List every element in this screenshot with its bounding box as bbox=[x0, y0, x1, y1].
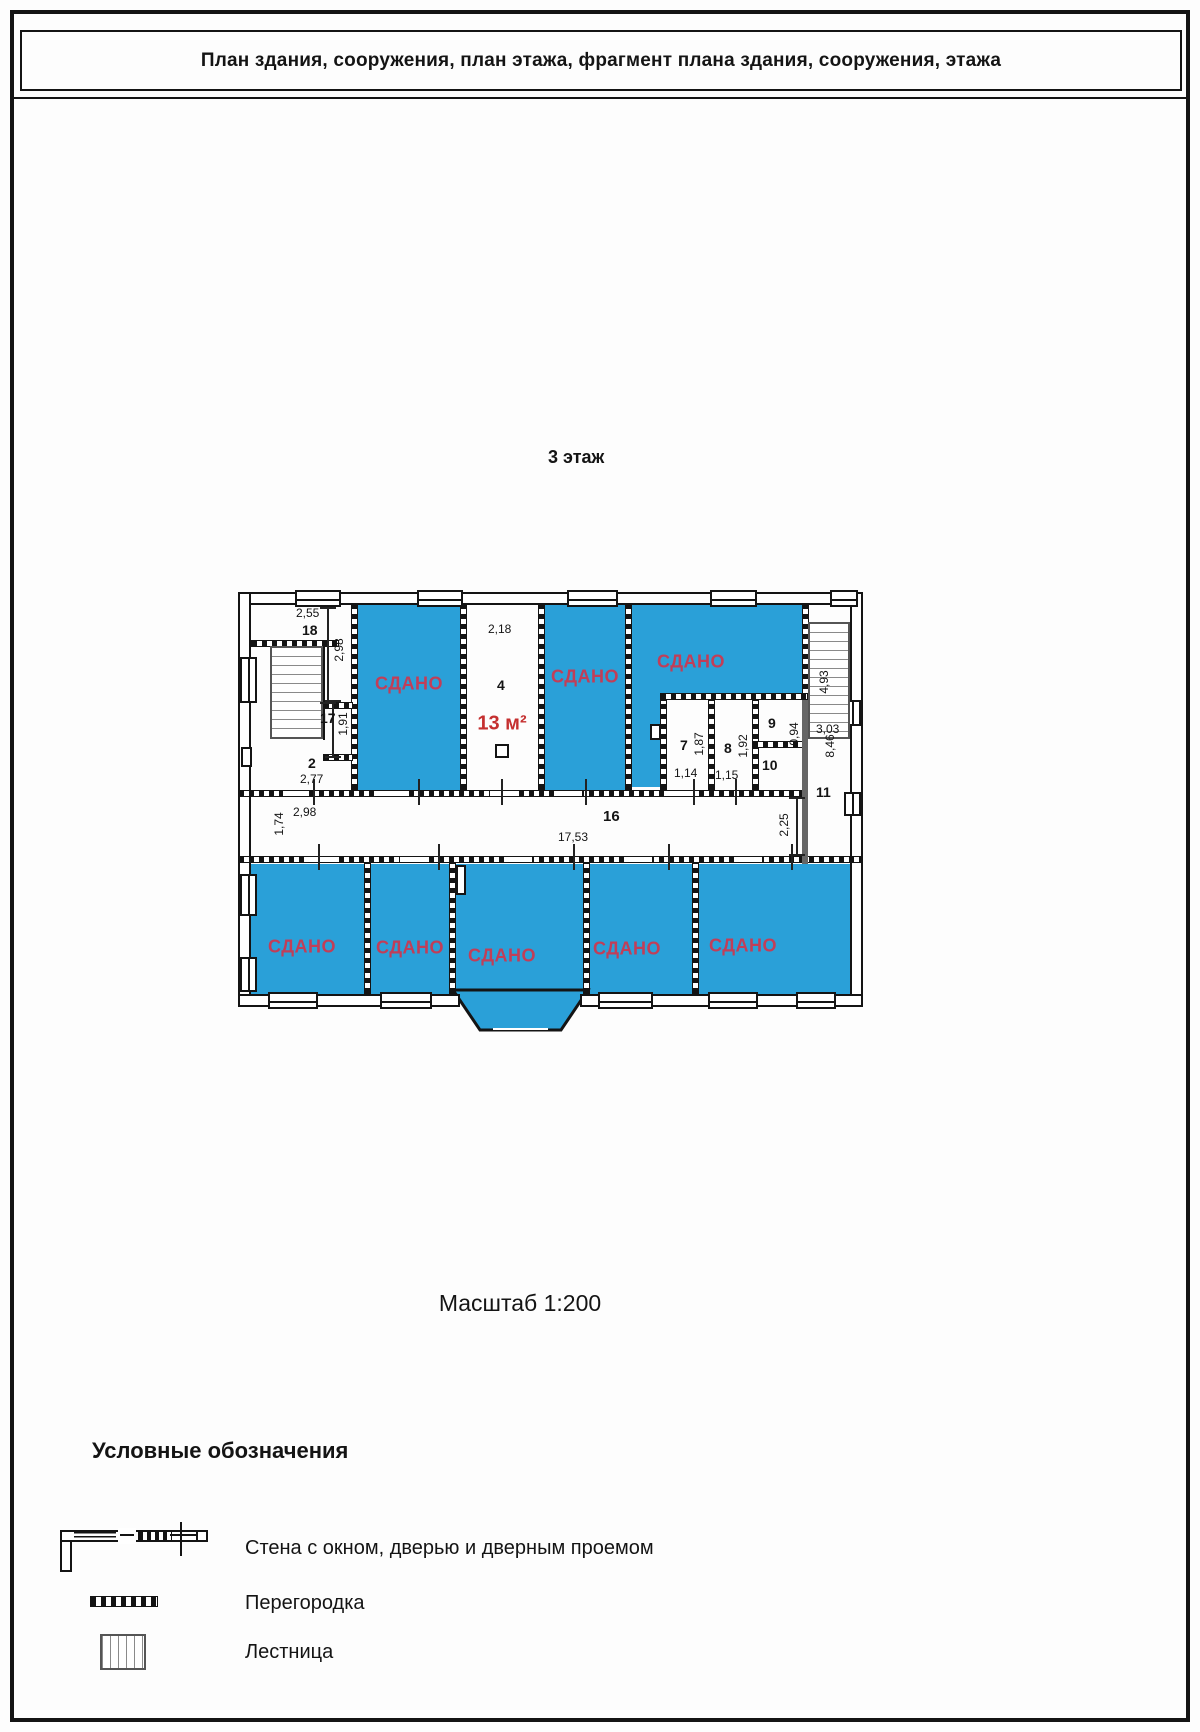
dimension-tick bbox=[318, 844, 320, 870]
bay-window bbox=[443, 988, 598, 1036]
rented-room-top-c-wing bbox=[632, 605, 660, 787]
legend-wall-label: Стена с окном, дверью и дверным проемом bbox=[245, 1537, 654, 1560]
dimension-tick bbox=[573, 844, 575, 870]
room-number-17: 17 bbox=[320, 710, 336, 726]
room-number-9: 9 bbox=[768, 715, 776, 731]
partition-wall bbox=[692, 863, 699, 994]
window-icon bbox=[240, 874, 257, 916]
door-icon bbox=[456, 865, 466, 895]
rented-label: СДАНО bbox=[593, 939, 661, 960]
dimension-tick bbox=[791, 844, 793, 870]
staircase-left bbox=[270, 646, 323, 739]
partition-wall bbox=[449, 863, 456, 994]
dim-2-98-vert: 2,98 bbox=[332, 638, 346, 661]
legend-partition-label: Перегородка bbox=[245, 1592, 365, 1615]
window-icon bbox=[417, 590, 463, 607]
rented-label: СДАНО bbox=[709, 936, 777, 957]
window-icon bbox=[268, 992, 318, 1009]
rented-room-top-a bbox=[358, 605, 460, 790]
dim-1-87: 1,87 bbox=[692, 732, 706, 755]
dim-1-14: 1,14 bbox=[674, 766, 697, 780]
door-icon bbox=[241, 747, 252, 767]
dim-2-18: 2,18 bbox=[488, 622, 511, 636]
partition-wall bbox=[660, 700, 667, 790]
rented-label: СДАНО bbox=[551, 667, 619, 688]
partition-wall bbox=[351, 605, 358, 790]
window-icon bbox=[295, 590, 341, 607]
door-opening bbox=[283, 790, 309, 797]
rented-room-bottom-1 bbox=[251, 864, 364, 994]
dim-3-03: 3,03 bbox=[816, 722, 839, 736]
dim-17-53: 17,53 bbox=[558, 830, 588, 844]
partition-wall bbox=[538, 605, 545, 790]
dimension-tick bbox=[693, 779, 695, 805]
dimension-line bbox=[327, 607, 329, 704]
legend-title: Условные обозначения bbox=[92, 1438, 348, 1464]
legend-partition-symbol bbox=[90, 1596, 158, 1607]
door-icon bbox=[650, 724, 661, 740]
floor-number-label: 3 этаж bbox=[548, 447, 604, 468]
window-icon bbox=[710, 590, 757, 607]
door-opening bbox=[378, 790, 406, 797]
partition-wall bbox=[708, 700, 715, 790]
window-icon bbox=[830, 590, 858, 607]
dimension-tick bbox=[585, 779, 587, 805]
dimension-line bbox=[332, 700, 334, 758]
legend-stairs-label: Лестница bbox=[245, 1641, 333, 1664]
rented-label: СДАНО bbox=[657, 652, 725, 673]
room-number-18: 18 bbox=[302, 622, 318, 638]
floor-plan: СДАНО СДАНО СДАНО СДАНО СДАНО СДАНО СДАН… bbox=[238, 574, 863, 1039]
door-opening bbox=[490, 790, 516, 797]
legend-stairs-symbol bbox=[100, 1634, 146, 1670]
dim-0-94: 0,94 bbox=[787, 722, 801, 745]
rented-room-bottom-5 bbox=[699, 864, 850, 994]
divider-line bbox=[14, 97, 1186, 99]
door-opening bbox=[308, 856, 334, 863]
rented-label: СДАНО bbox=[376, 938, 444, 959]
dim-1-91: 1,91 bbox=[336, 712, 350, 735]
dimension-tick bbox=[438, 844, 440, 870]
dimension-tick bbox=[501, 779, 503, 805]
document-page: План здания, сооружения, план этажа, фра… bbox=[0, 0, 1200, 1732]
door-opening bbox=[400, 856, 426, 863]
dim-2-77: 2,77 bbox=[300, 772, 323, 786]
window-icon bbox=[796, 992, 836, 1009]
door-opening bbox=[668, 790, 694, 797]
title-box: План здания, сооружения, план этажа, фра… bbox=[20, 30, 1182, 91]
window-icon bbox=[240, 957, 257, 992]
partition-wall bbox=[364, 863, 371, 994]
room-number-8: 8 bbox=[724, 740, 732, 756]
corridor-wall-top bbox=[238, 790, 808, 797]
wall-left bbox=[238, 592, 251, 1007]
rented-room-top-b bbox=[545, 605, 625, 790]
dim-4-93: 4,93 bbox=[817, 670, 831, 693]
room-number-11: 11 bbox=[816, 784, 831, 800]
dimension-tick bbox=[668, 844, 670, 870]
partition-wall bbox=[660, 693, 808, 700]
door-opening bbox=[556, 790, 582, 797]
rented-label: СДАНО bbox=[268, 937, 336, 958]
dimension-tick bbox=[418, 779, 420, 805]
legend-wall-symbol bbox=[58, 1522, 218, 1582]
window-icon bbox=[844, 792, 861, 816]
area-13m2-label: 13 м² bbox=[477, 713, 526, 736]
dim-2-55: 2,55 bbox=[296, 606, 319, 620]
dim-2-25: 2,25 bbox=[777, 813, 791, 836]
door-opening bbox=[626, 856, 652, 863]
dim-8-46: 8,46 bbox=[823, 734, 837, 757]
page-title: План здания, сооружения, план этажа, фра… bbox=[201, 50, 1001, 72]
dimension-line bbox=[796, 797, 798, 856]
window-icon bbox=[380, 992, 432, 1009]
room-number-2: 2 bbox=[308, 755, 316, 771]
window-icon bbox=[567, 590, 618, 607]
corridor-end-wall bbox=[802, 700, 808, 864]
window-icon bbox=[708, 992, 758, 1009]
window-icon bbox=[240, 657, 257, 703]
door-opening bbox=[506, 856, 532, 863]
room-number-16: 16 bbox=[603, 808, 620, 825]
room-number-10: 10 bbox=[762, 757, 778, 773]
partition-wall bbox=[460, 605, 467, 790]
partition-wall bbox=[583, 863, 590, 994]
dim-1-74: 1,74 bbox=[272, 812, 286, 835]
room-number-4: 4 bbox=[497, 677, 505, 693]
rented-room-bottom-2 bbox=[371, 864, 449, 994]
rented-label: СДАНО bbox=[468, 946, 536, 967]
dimension-tick bbox=[735, 779, 737, 805]
door-opening bbox=[736, 856, 762, 863]
room-number-7: 7 bbox=[680, 737, 688, 753]
partition-wall bbox=[625, 605, 632, 790]
rented-room-bottom-4 bbox=[590, 864, 692, 994]
scale-label: Масштаб 1:200 bbox=[370, 1290, 670, 1317]
dim-1-92: 1,92 bbox=[736, 734, 750, 757]
window-icon bbox=[598, 992, 653, 1009]
hatch-square bbox=[495, 744, 509, 758]
rented-label: СДАНО bbox=[375, 674, 443, 695]
dim-2-98-corridor: 2,98 bbox=[293, 805, 316, 819]
rented-room-bottom-3 bbox=[456, 864, 583, 994]
dim-1-15: 1,15 bbox=[715, 768, 738, 782]
